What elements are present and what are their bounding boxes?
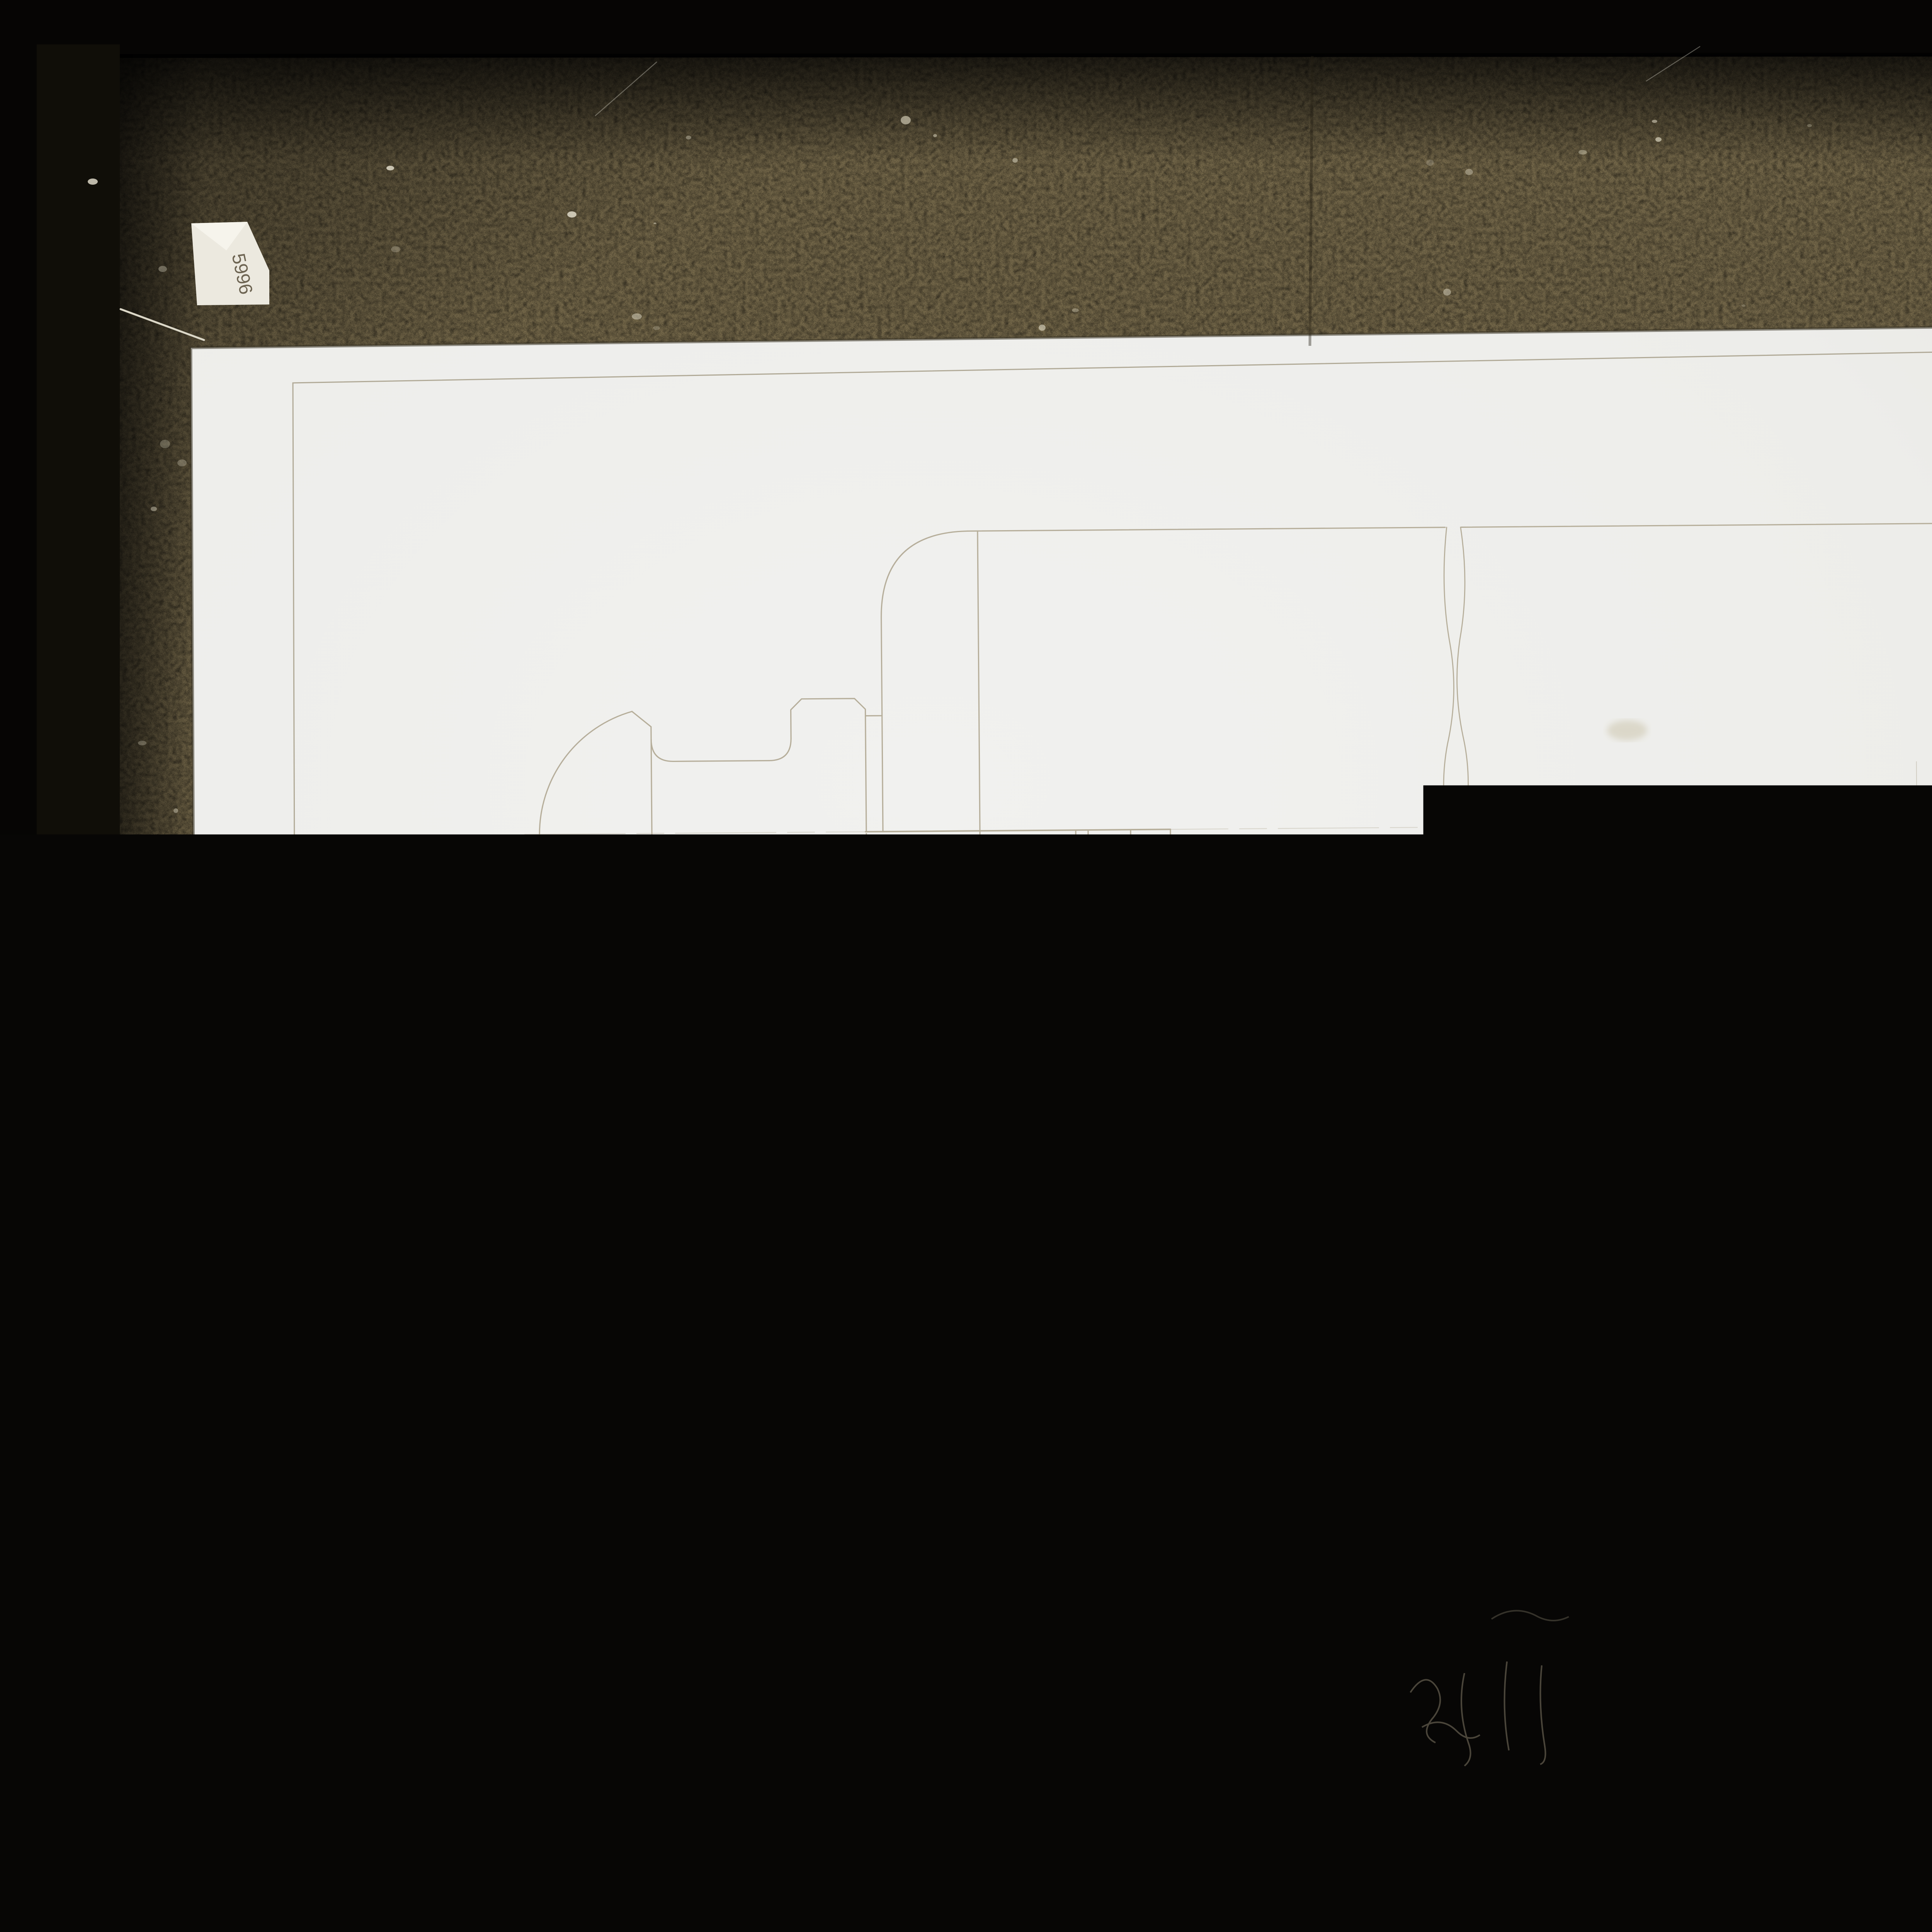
svg-text:5987: 5987	[196, 1905, 249, 1932]
svg-text:Anyagminőség: Anyagminőség	[1832, 1458, 1888, 1468]
svg-text:2: 2	[755, 1243, 778, 1286]
svg-text:1.997-05.06.04:200 (3): 1.997-05.06.04:200 (3)	[1619, 1236, 1932, 1278]
svg-text:A rajz megnevezése: A rajz megnevezése	[1530, 1461, 1607, 1470]
svg-text:1: 1	[499, 1245, 521, 1289]
svg-text:Csuklósfej: Csuklósfej	[1629, 1682, 1819, 1725]
svg-text:Moharni: Moharni	[1637, 1629, 1720, 1659]
svg-text:972. X.1: 972. X.1	[1633, 1509, 1691, 1528]
svg-text:1.997-05.06.04:100 (3): 1.997-05.06.04:100 (3)	[945, 1241, 1316, 1283]
svg-text:Lc 12/II jelű zsírral töltve: Lc 12/II jelű zsírral töltve	[721, 1367, 949, 1391]
